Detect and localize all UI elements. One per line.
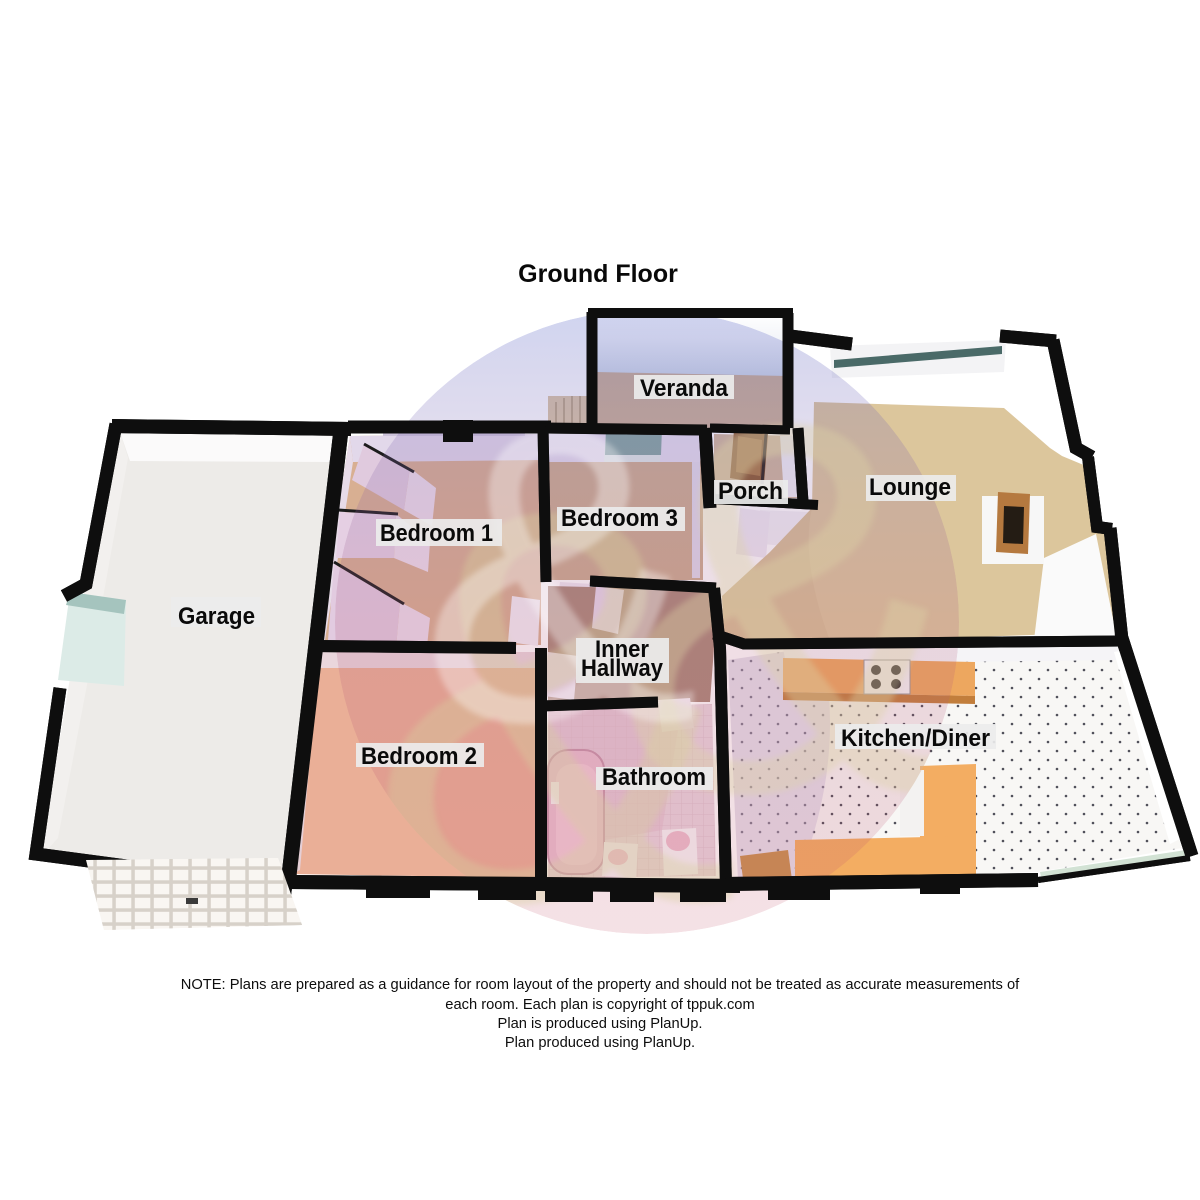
svg-text:Bedroom 2: Bedroom 2 — [361, 743, 477, 770]
svg-text:Kitchen/Diner: Kitchen/Diner — [841, 725, 990, 752]
svg-text:each room. Each plan is copyri: each room. Each plan is copyright of tpp… — [445, 997, 754, 1013]
svg-text:Porch: Porch — [718, 478, 783, 505]
svg-text:Ground Floor: Ground Floor — [518, 260, 678, 288]
svg-text:Bedroom 1: Bedroom 1 — [380, 520, 493, 547]
svg-text:Garage: Garage — [178, 603, 255, 630]
svg-text:Veranda: Veranda — [640, 375, 729, 402]
svg-text:Bedroom 3: Bedroom 3 — [561, 505, 678, 532]
svg-text:Hallway: Hallway — [581, 655, 664, 682]
svg-text:Lounge: Lounge — [869, 474, 951, 501]
svg-text:Plan produced using PlanUp.: Plan produced using PlanUp. — [505, 1035, 695, 1051]
svg-text:NOTE: Plans are prepared as a: NOTE: Plans are prepared as a guidance f… — [181, 977, 1020, 993]
svg-text:Plan is produced using PlanUp.: Plan is produced using PlanUp. — [498, 1016, 703, 1032]
svg-text:&: & — [420, 341, 700, 810]
svg-text:Bathroom: Bathroom — [602, 764, 706, 791]
